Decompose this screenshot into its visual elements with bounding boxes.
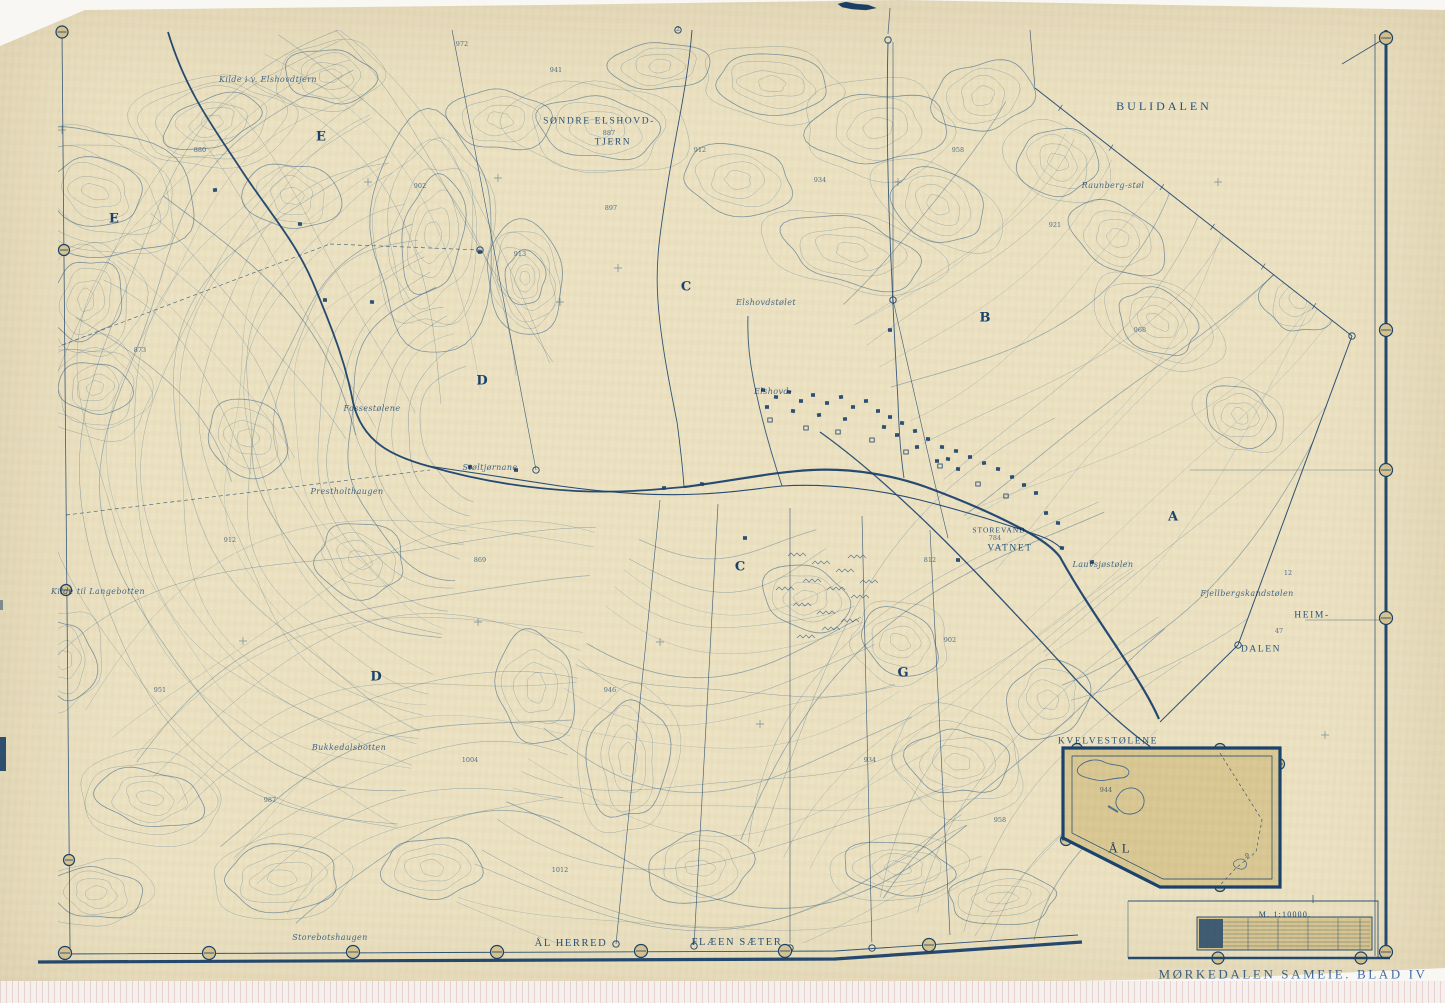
spot-height: 944 xyxy=(1100,787,1112,794)
scanned-map-sheet: KVELVESTØLENE ÅL ÅL HERRED FLÆEN SÆTER M… xyxy=(0,0,1445,1003)
place-label: TJERN xyxy=(595,138,632,148)
spot-height: 784 xyxy=(989,535,1001,542)
place-label: Bukkedalsbotten xyxy=(312,744,386,752)
place-label: BULIDALEN xyxy=(1116,100,1212,112)
parcel-letter: A xyxy=(1168,511,1178,524)
spot-height: 869 xyxy=(474,557,486,564)
spot-height: 912 xyxy=(224,537,236,544)
spot-height: 934 xyxy=(814,177,826,184)
spot-height: 2 xyxy=(676,26,680,33)
spot-height: 946 xyxy=(604,687,616,694)
spot-height: 912 xyxy=(694,147,706,154)
spot-height: 958 xyxy=(994,817,1006,824)
place-label: Prestholthaugen xyxy=(310,488,383,496)
spot-height: 1004 xyxy=(462,757,479,764)
spot-height: 897 xyxy=(605,205,617,212)
place-label: Støltjørnane xyxy=(462,464,517,472)
parcel-letter: D xyxy=(476,375,487,388)
spot-height: 951 xyxy=(154,687,166,694)
inset-area-label: ÅL xyxy=(1108,842,1133,855)
scale-label: M. 1:10000. xyxy=(1259,911,1312,919)
spot-height: 812 xyxy=(924,557,936,564)
spot-height: 1012 xyxy=(552,867,569,874)
place-label: STOREVAND xyxy=(972,526,1025,534)
place-label: Kilde til Langebotten xyxy=(51,588,145,596)
spot-height: 9 xyxy=(1245,853,1249,860)
spot-height: 880 xyxy=(194,147,206,154)
seter-label: FLÆEN SÆTER xyxy=(692,938,783,949)
spot-height: 913 xyxy=(514,251,526,258)
spot-height: 941 xyxy=(550,67,562,74)
spot-height: 902 xyxy=(944,637,956,644)
spot-height: 902 xyxy=(414,183,426,190)
place-label: Elshovdstølet xyxy=(736,299,796,307)
place-label: Fjellbergskandstølen xyxy=(1200,590,1293,598)
place-label: Elshovd- xyxy=(754,388,792,396)
parcel-letter: G xyxy=(897,667,908,680)
map-labels: KVELVESTØLENE ÅL ÅL HERRED FLÆEN SÆTER M… xyxy=(0,0,1445,1003)
map-title: MØRKEDALEN SAMEIE. BLAD IV xyxy=(1158,968,1427,981)
spot-height: 958 xyxy=(952,147,964,154)
spot-height: 972 xyxy=(456,41,468,48)
municipality-label: ÅL HERRED xyxy=(535,939,608,950)
place-label: VATNET xyxy=(987,544,1032,554)
parcel-letter: C xyxy=(681,281,691,294)
place-label: Storebotshaugen xyxy=(292,934,367,942)
parcel-letter: E xyxy=(316,131,326,144)
spot-height: 873 xyxy=(134,347,146,354)
place-label: HEIM- xyxy=(1294,611,1329,621)
place-label: Kilde i v. Elshovdtjern xyxy=(219,76,317,84)
spot-height: 934 xyxy=(864,757,876,764)
spot-height: 968 xyxy=(1134,327,1146,334)
place-label: DALEN xyxy=(1241,645,1281,655)
parcel-letter: C xyxy=(735,561,745,574)
parcel-letter: D xyxy=(370,671,381,684)
spot-height: 47 xyxy=(1275,628,1283,635)
spot-height: 921 xyxy=(1049,222,1061,229)
place-label: Fossestølene xyxy=(344,405,401,413)
place-label: SØNDRE ELSHOVD- xyxy=(543,117,655,127)
parcel-letter: E xyxy=(109,213,119,226)
place-label: Lauvsjøstølen xyxy=(1073,561,1134,569)
spot-height: 887 xyxy=(603,130,615,137)
place-label: Raunberg-støl xyxy=(1082,182,1145,190)
inset-title: KVELVESTØLENE xyxy=(1058,737,1158,747)
parcel-letter: B xyxy=(980,312,991,325)
spot-height: 12 xyxy=(1284,570,1292,577)
spot-height: 987 xyxy=(264,797,276,804)
